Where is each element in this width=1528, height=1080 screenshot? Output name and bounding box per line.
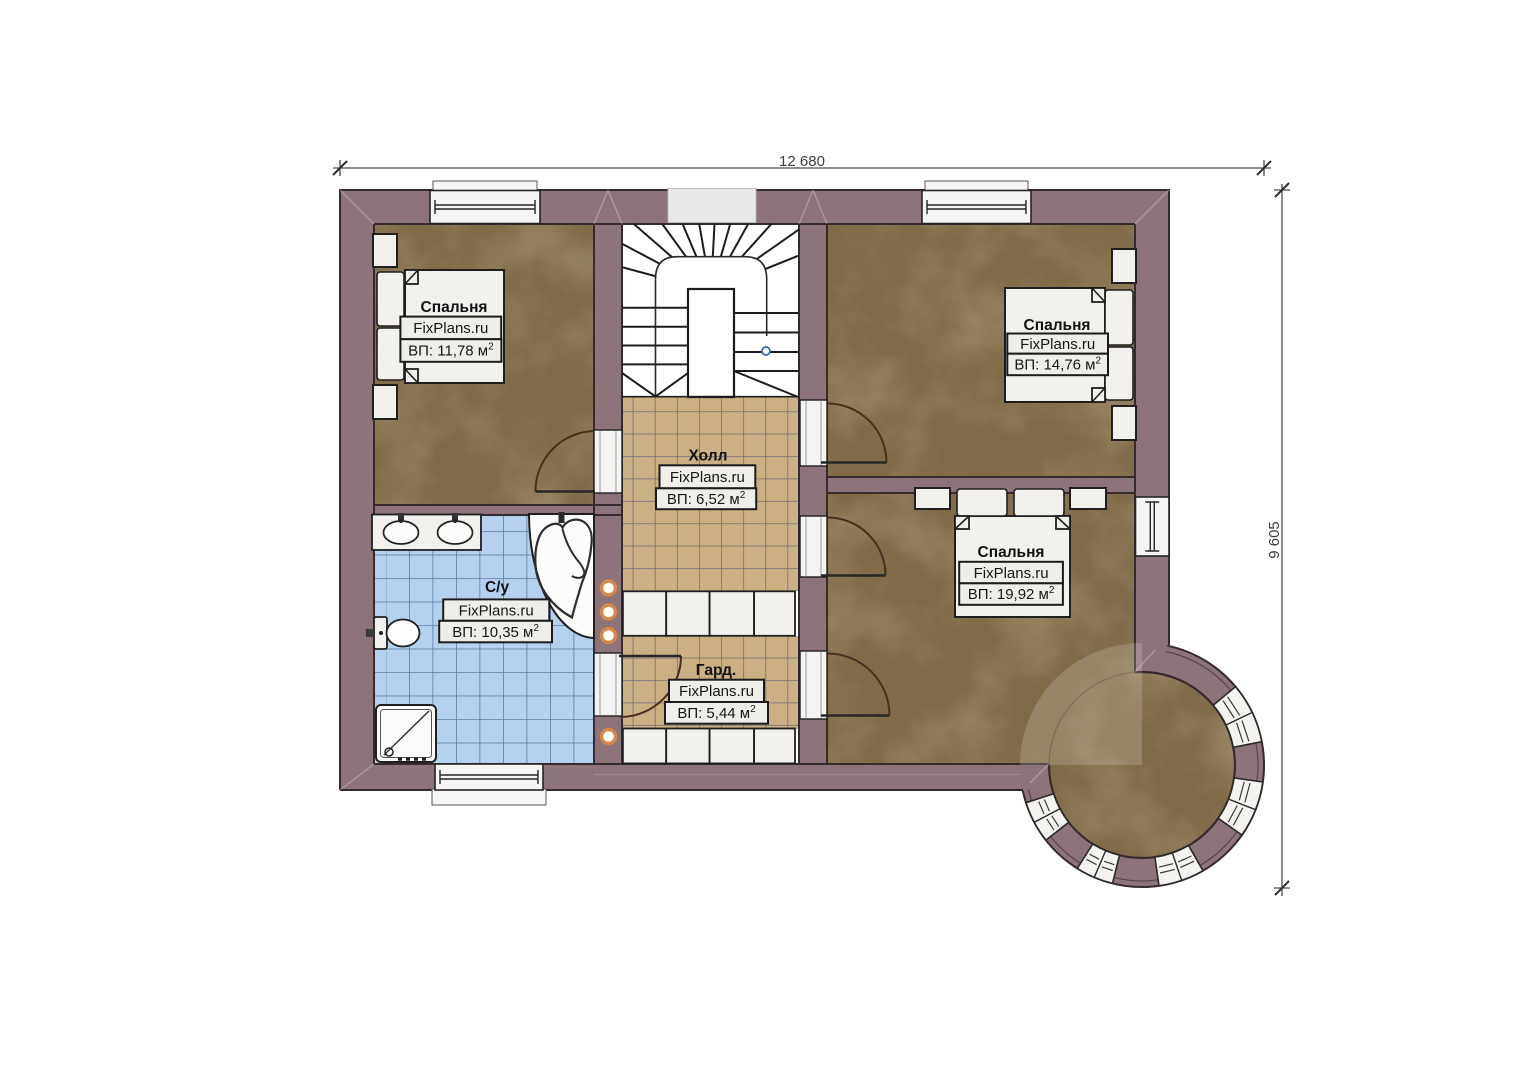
svg-text:Спальня: Спальня xyxy=(978,544,1045,561)
svg-text:С/у: С/у xyxy=(485,579,510,596)
svg-text:9 605: 9 605 xyxy=(1266,521,1283,559)
svg-text:FixPlans.ru: FixPlans.ru xyxy=(670,469,745,486)
svg-text:FixPlans.ru: FixPlans.ru xyxy=(413,320,488,337)
svg-text:FixPlans.ru: FixPlans.ru xyxy=(679,683,754,700)
svg-text:FixPlans.ru: FixPlans.ru xyxy=(459,602,534,619)
svg-text:FixPlans.ru: FixPlans.ru xyxy=(974,565,1049,582)
svg-text:ВП: 10,35 м2: ВП: 10,35 м2 xyxy=(452,623,539,641)
svg-text:ВП: 14,76 м2: ВП: 14,76 м2 xyxy=(1014,356,1101,374)
svg-text:ВП: 19,92 м2: ВП: 19,92 м2 xyxy=(968,585,1055,603)
svg-text:Холл: Холл xyxy=(689,448,728,465)
svg-text:12 680: 12 680 xyxy=(779,153,825,170)
svg-text:Спальня: Спальня xyxy=(421,299,488,316)
svg-text:FixPlans.ru: FixPlans.ru xyxy=(1020,336,1095,353)
svg-text:ВП: 5,44 м2: ВП: 5,44 м2 xyxy=(677,704,756,722)
svg-text:ВП: 11,78 м2: ВП: 11,78 м2 xyxy=(408,342,494,360)
svg-text:Спальня: Спальня xyxy=(1024,317,1091,334)
svg-text:ВП: 6,52 м2: ВП: 6,52 м2 xyxy=(667,490,746,508)
svg-text:Гард.: Гард. xyxy=(696,662,736,679)
